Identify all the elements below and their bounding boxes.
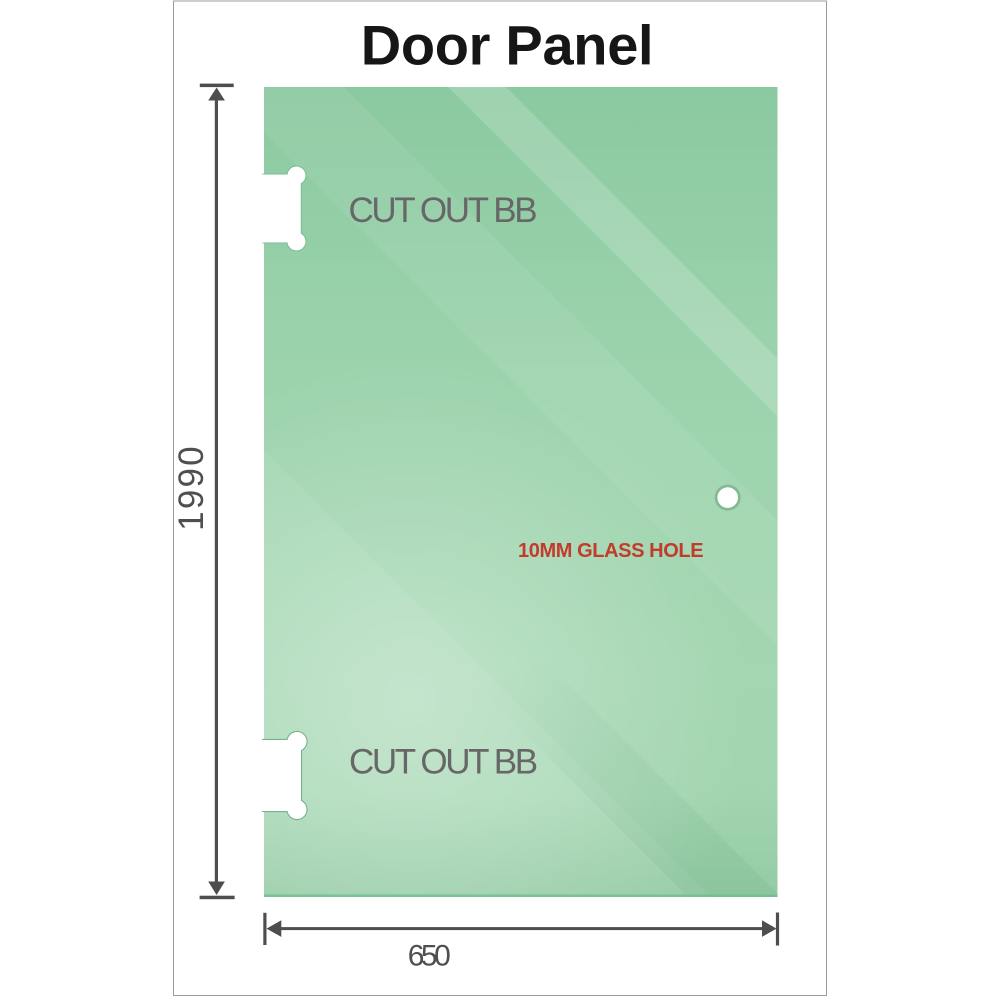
svg-text:1990: 1990 xyxy=(172,444,211,531)
svg-text:CUT OUT BB: CUT OUT BB xyxy=(349,191,537,230)
svg-text:10MM GLASS HOLE: 10MM GLASS HOLE xyxy=(518,540,703,562)
svg-text:CUT OUT BB: CUT OUT BB xyxy=(349,742,537,781)
svg-text:650: 650 xyxy=(408,940,450,973)
svg-text:Door Panel: Door Panel xyxy=(361,14,654,77)
